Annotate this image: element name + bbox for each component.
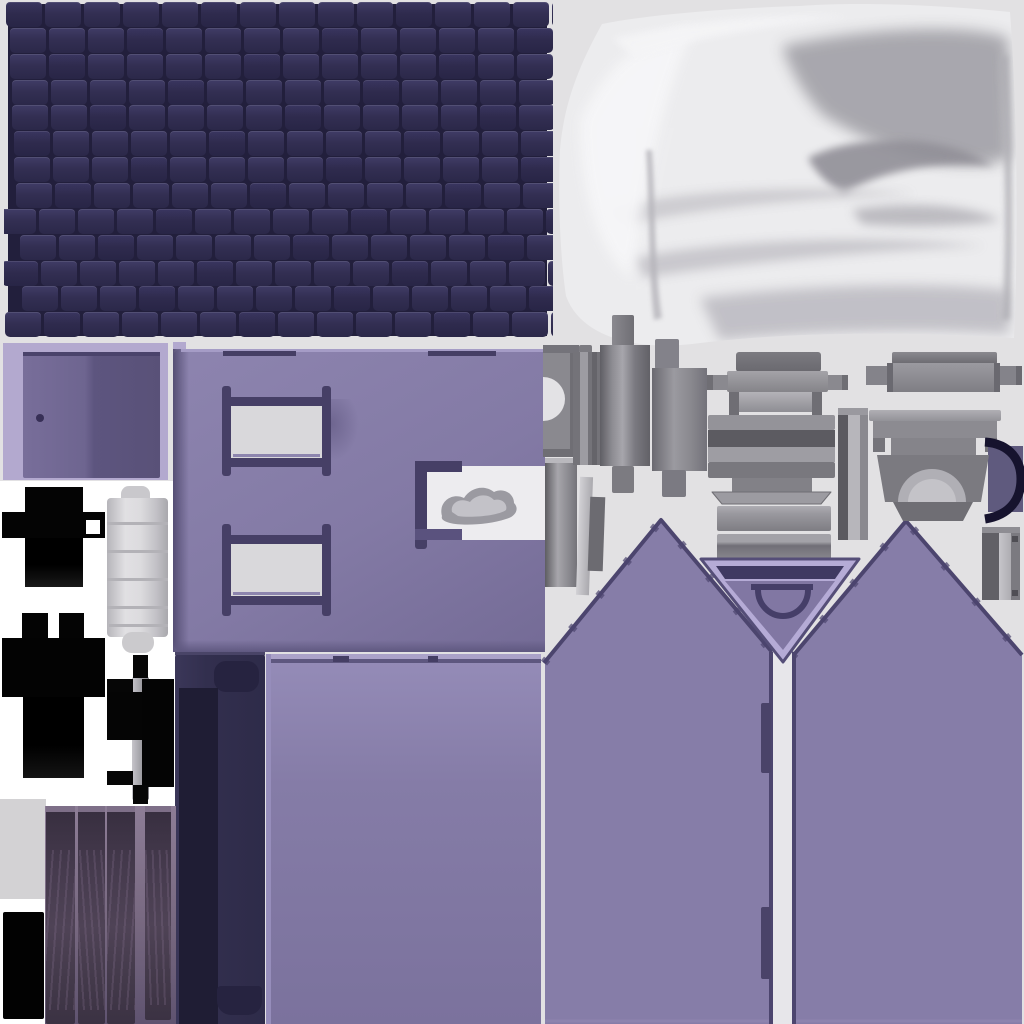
uv-texture-atlas bbox=[0, 0, 1024, 1024]
collar-inset-svg bbox=[0, 0, 1024, 1024]
v-dark-band bbox=[716, 566, 844, 579]
collar-inset bbox=[0, 0, 1024, 1024]
